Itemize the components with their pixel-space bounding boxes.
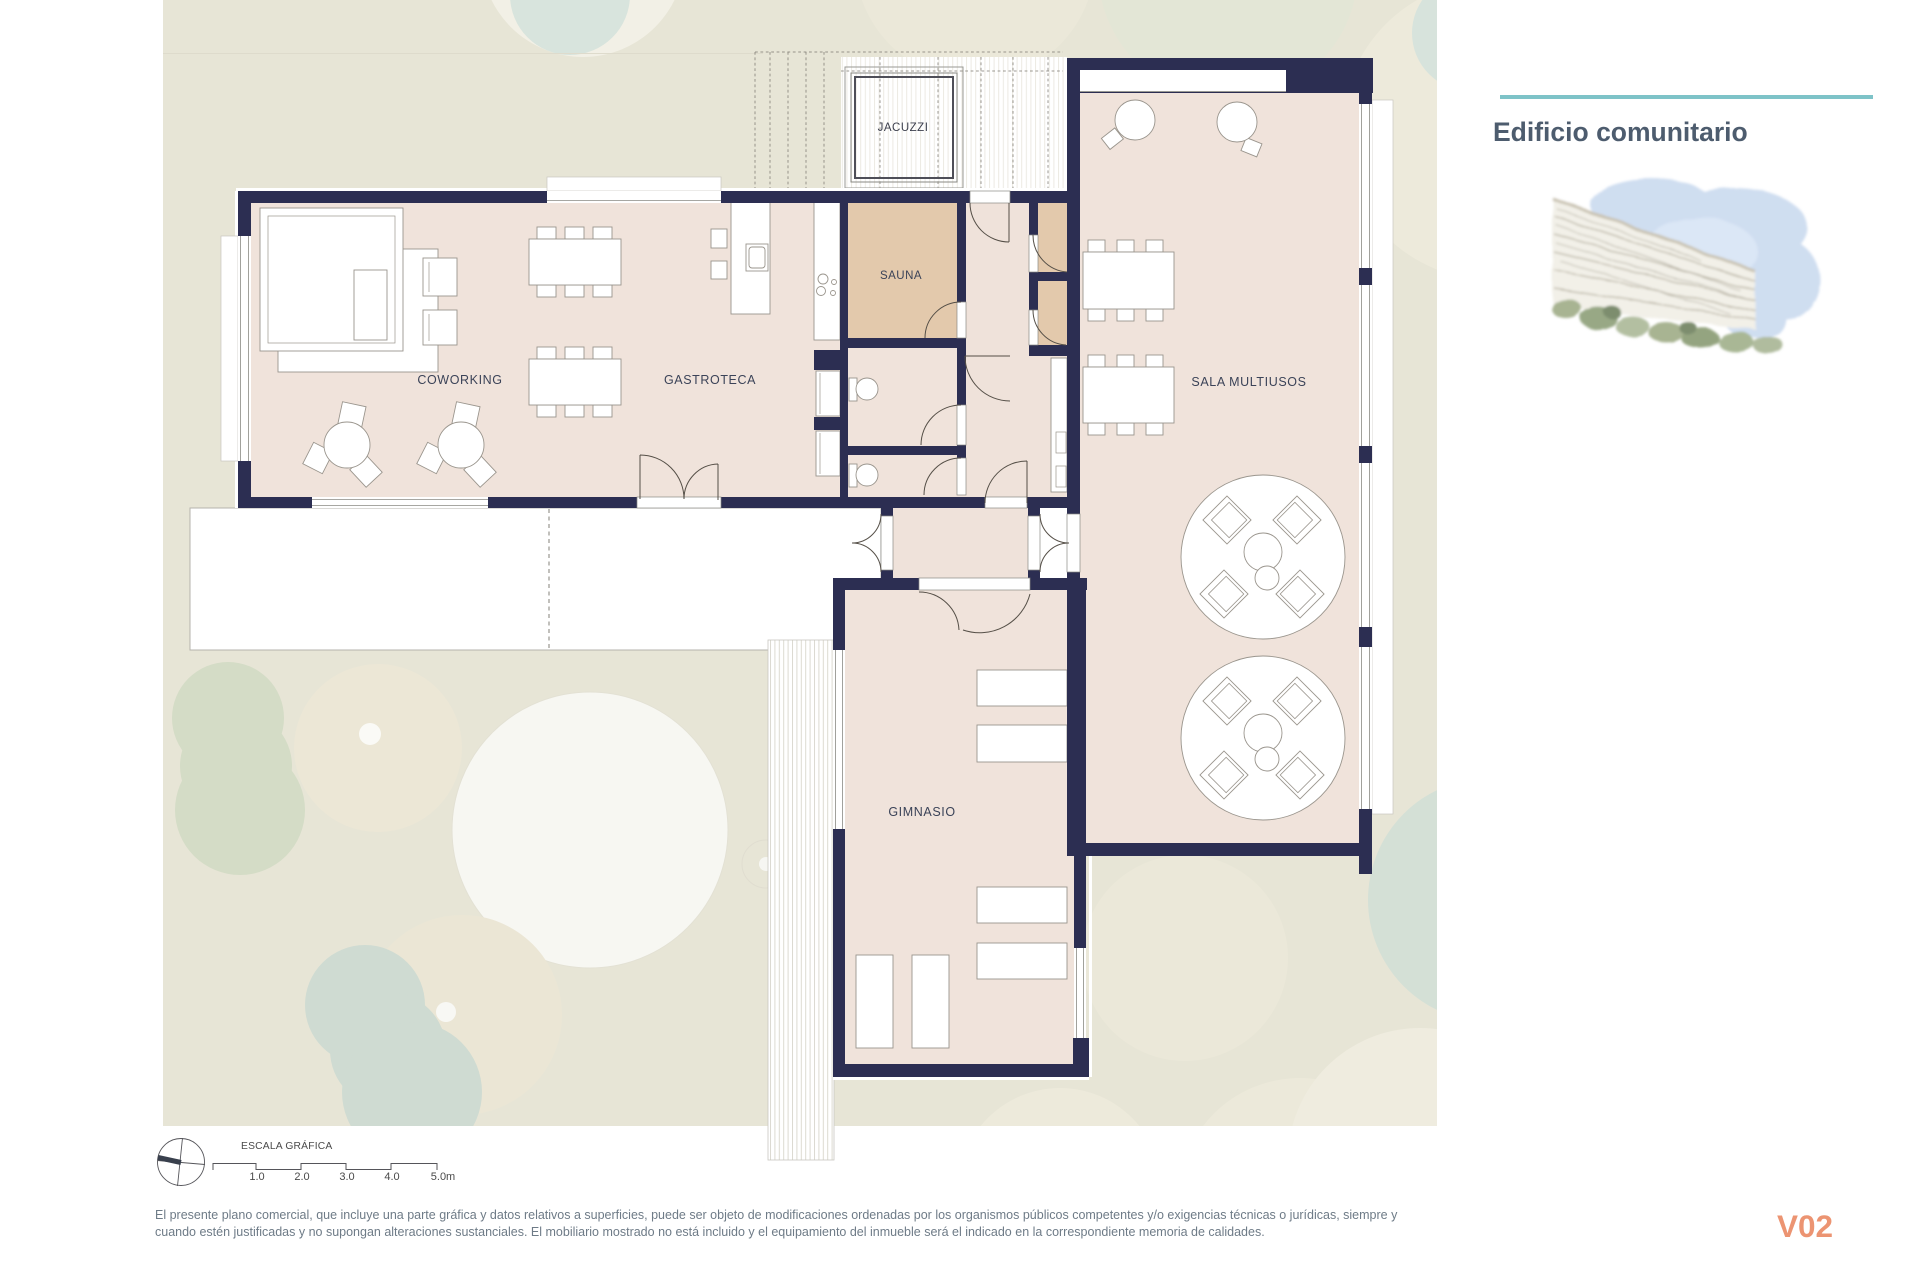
svg-text:GASTROTECA: GASTROTECA — [664, 373, 756, 387]
svg-text:2.0: 2.0 — [294, 1171, 309, 1183]
svg-text:SALA MULTIUSOS: SALA MULTIUSOS — [1191, 375, 1306, 389]
svg-text:4.0: 4.0 — [384, 1171, 399, 1183]
svg-text:Edificio comunitario: Edificio comunitario — [1493, 117, 1748, 147]
svg-text:GIMNASIO: GIMNASIO — [888, 805, 955, 819]
svg-text:COWORKING: COWORKING — [417, 373, 502, 387]
svg-text:El presente plano comercial, q: El presente plano comercial, que incluye… — [155, 1208, 1398, 1222]
svg-text:V02: V02 — [1777, 1208, 1833, 1244]
svg-text:1.0: 1.0 — [249, 1171, 264, 1183]
svg-text:cuando estén justificadas y no: cuando estén justificadas y no supongan … — [155, 1225, 1265, 1239]
svg-text:3.0: 3.0 — [339, 1171, 354, 1183]
svg-text:5.0m: 5.0m — [431, 1171, 455, 1183]
svg-text:SAUNA: SAUNA — [880, 270, 922, 282]
svg-text:ESCALA GRÁFICA: ESCALA GRÁFICA — [241, 1139, 333, 1152]
svg-text:JACUZZI: JACUZZI — [878, 122, 929, 134]
